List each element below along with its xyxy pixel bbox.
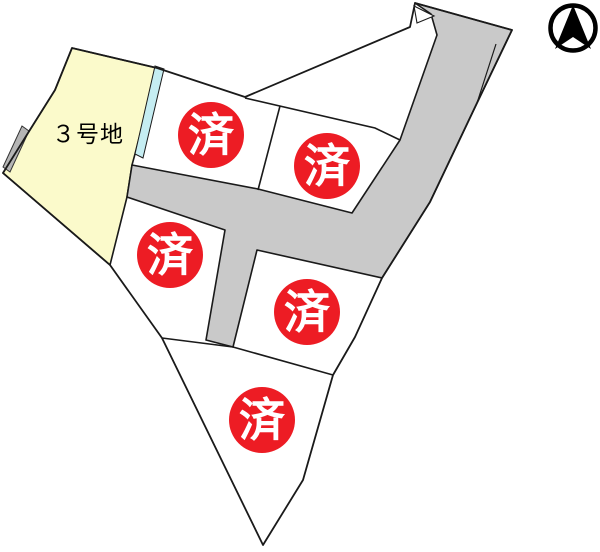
sold-badge-text: 済	[147, 229, 194, 281]
sold-badge: 済	[229, 387, 295, 453]
sold-badge-text: 済	[304, 140, 351, 192]
sold-badge: 済	[137, 222, 203, 288]
sold-badge: 済	[274, 279, 340, 345]
north-arrow-icon	[551, 5, 596, 51]
site-plan-map: ３号地 済 済 済 済 済	[0, 0, 600, 552]
lot-divider-4-5	[233, 347, 333, 375]
sold-badge-text: 済	[188, 109, 235, 161]
sold-badge: 済	[178, 102, 244, 168]
sold-badge-text: 済	[239, 394, 286, 446]
sold-badge: 済	[294, 133, 360, 199]
site-plan-svg: ３号地 済 済 済 済 済	[0, 0, 600, 552]
lot-3-area	[3, 48, 157, 265]
lot-3-label: ３号地	[52, 121, 124, 147]
sold-badge-text: 済	[284, 286, 331, 338]
lot-divider-1-2	[258, 106, 280, 190]
